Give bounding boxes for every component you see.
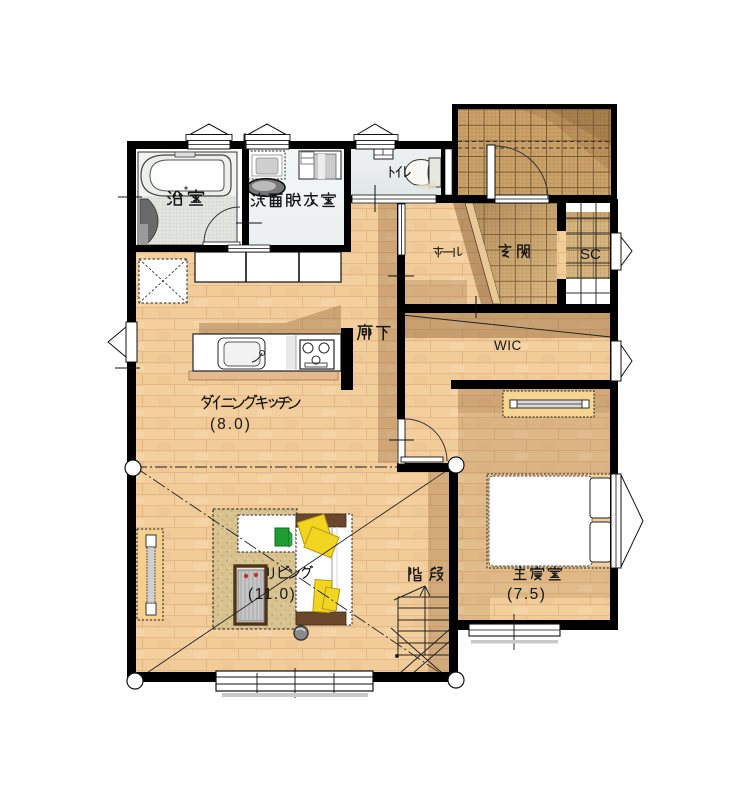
svg-text:SC: SC [580,246,601,263]
svg-text:(8.0): (8.0) [210,416,252,433]
svg-text:WIC: WIC [494,338,522,353]
svg-text:(7.5): (7.5) [507,586,546,603]
svg-text:(11.0): (11.0) [248,586,296,603]
